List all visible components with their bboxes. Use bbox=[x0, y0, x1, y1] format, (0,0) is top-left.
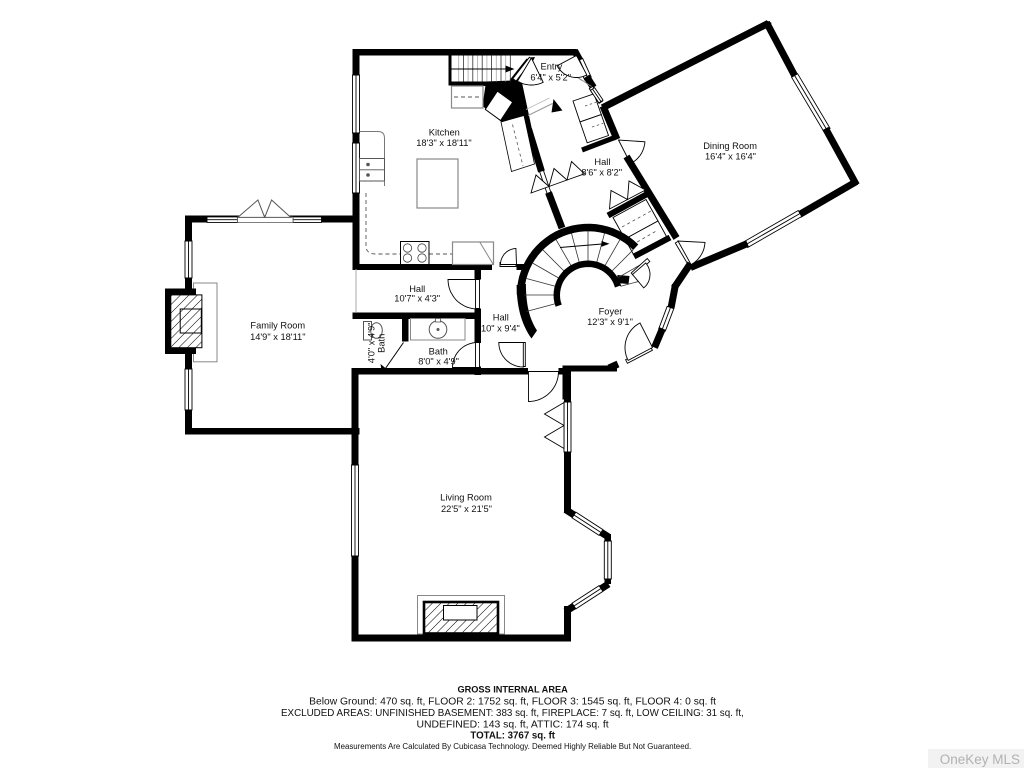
svg-text:Measurements Are Calculated By: Measurements Are Calculated By Cubicasa … bbox=[334, 742, 691, 751]
svg-text:Bath: Bath bbox=[429, 347, 448, 357]
svg-text:GROSS INTERNAL AREA: GROSS INTERNAL AREA bbox=[457, 685, 568, 695]
svg-text:TOTAL: 3767 sq. ft: TOTAL: 3767 sq. ft bbox=[470, 731, 555, 742]
svg-text:Living Room: Living Room bbox=[440, 493, 492, 503]
svg-text:Foyer: Foyer bbox=[599, 307, 623, 317]
svg-text:Below Ground: 470 sq. ft, FLOO: Below Ground: 470 sq. ft, FLOOR 2: 1752 … bbox=[309, 697, 716, 708]
svg-text:Family Room: Family Room bbox=[250, 320, 305, 330]
svg-text:16'4" x 16'4": 16'4" x 16'4" bbox=[705, 152, 756, 162]
svg-text:14'9" x 18'11": 14'9" x 18'11" bbox=[250, 332, 305, 342]
svg-text:OneKey MLS: OneKey MLS bbox=[940, 752, 1020, 767]
svg-text:Dining Room: Dining Room bbox=[703, 141, 757, 151]
svg-text:8'6" x 8'2": 8'6" x 8'2" bbox=[581, 168, 622, 178]
svg-text:12'3" x 9'1": 12'3" x 9'1" bbox=[587, 317, 633, 327]
svg-text:10'7" x 4'3": 10'7" x 4'3" bbox=[394, 294, 440, 304]
svg-text:Hall: Hall bbox=[594, 157, 610, 167]
svg-text:18'3" x 18'11": 18'3" x 18'11" bbox=[416, 138, 471, 148]
svg-text:Hall: Hall bbox=[493, 312, 509, 322]
svg-text:22'5" x 21'5": 22'5" x 21'5" bbox=[441, 504, 492, 514]
svg-text:Entry: Entry bbox=[541, 62, 563, 72]
svg-text:6'4" x 5'2": 6'4" x 5'2" bbox=[530, 73, 571, 83]
svg-text:'10" x 9'4": '10" x 9'4" bbox=[479, 324, 520, 334]
svg-text:UNDEFINED: 143 sq. ft, ATTIC:: UNDEFINED: 143 sq. ft, ATTIC: 174 sq. ft bbox=[417, 720, 609, 731]
svg-text:8'0" x 4'9": 8'0" x 4'9" bbox=[418, 357, 459, 367]
svg-text:EXCLUDED AREAS: UNFINISHED BAS: EXCLUDED AREAS: UNFINISHED BASEMENT: 383… bbox=[281, 708, 744, 719]
svg-text:Hall: Hall bbox=[409, 284, 425, 294]
svg-text:4'0" x 4'9": 4'0" x 4'9" bbox=[367, 323, 377, 364]
svg-text:Kitchen: Kitchen bbox=[429, 128, 460, 138]
svg-text:Bath: Bath bbox=[377, 334, 387, 353]
